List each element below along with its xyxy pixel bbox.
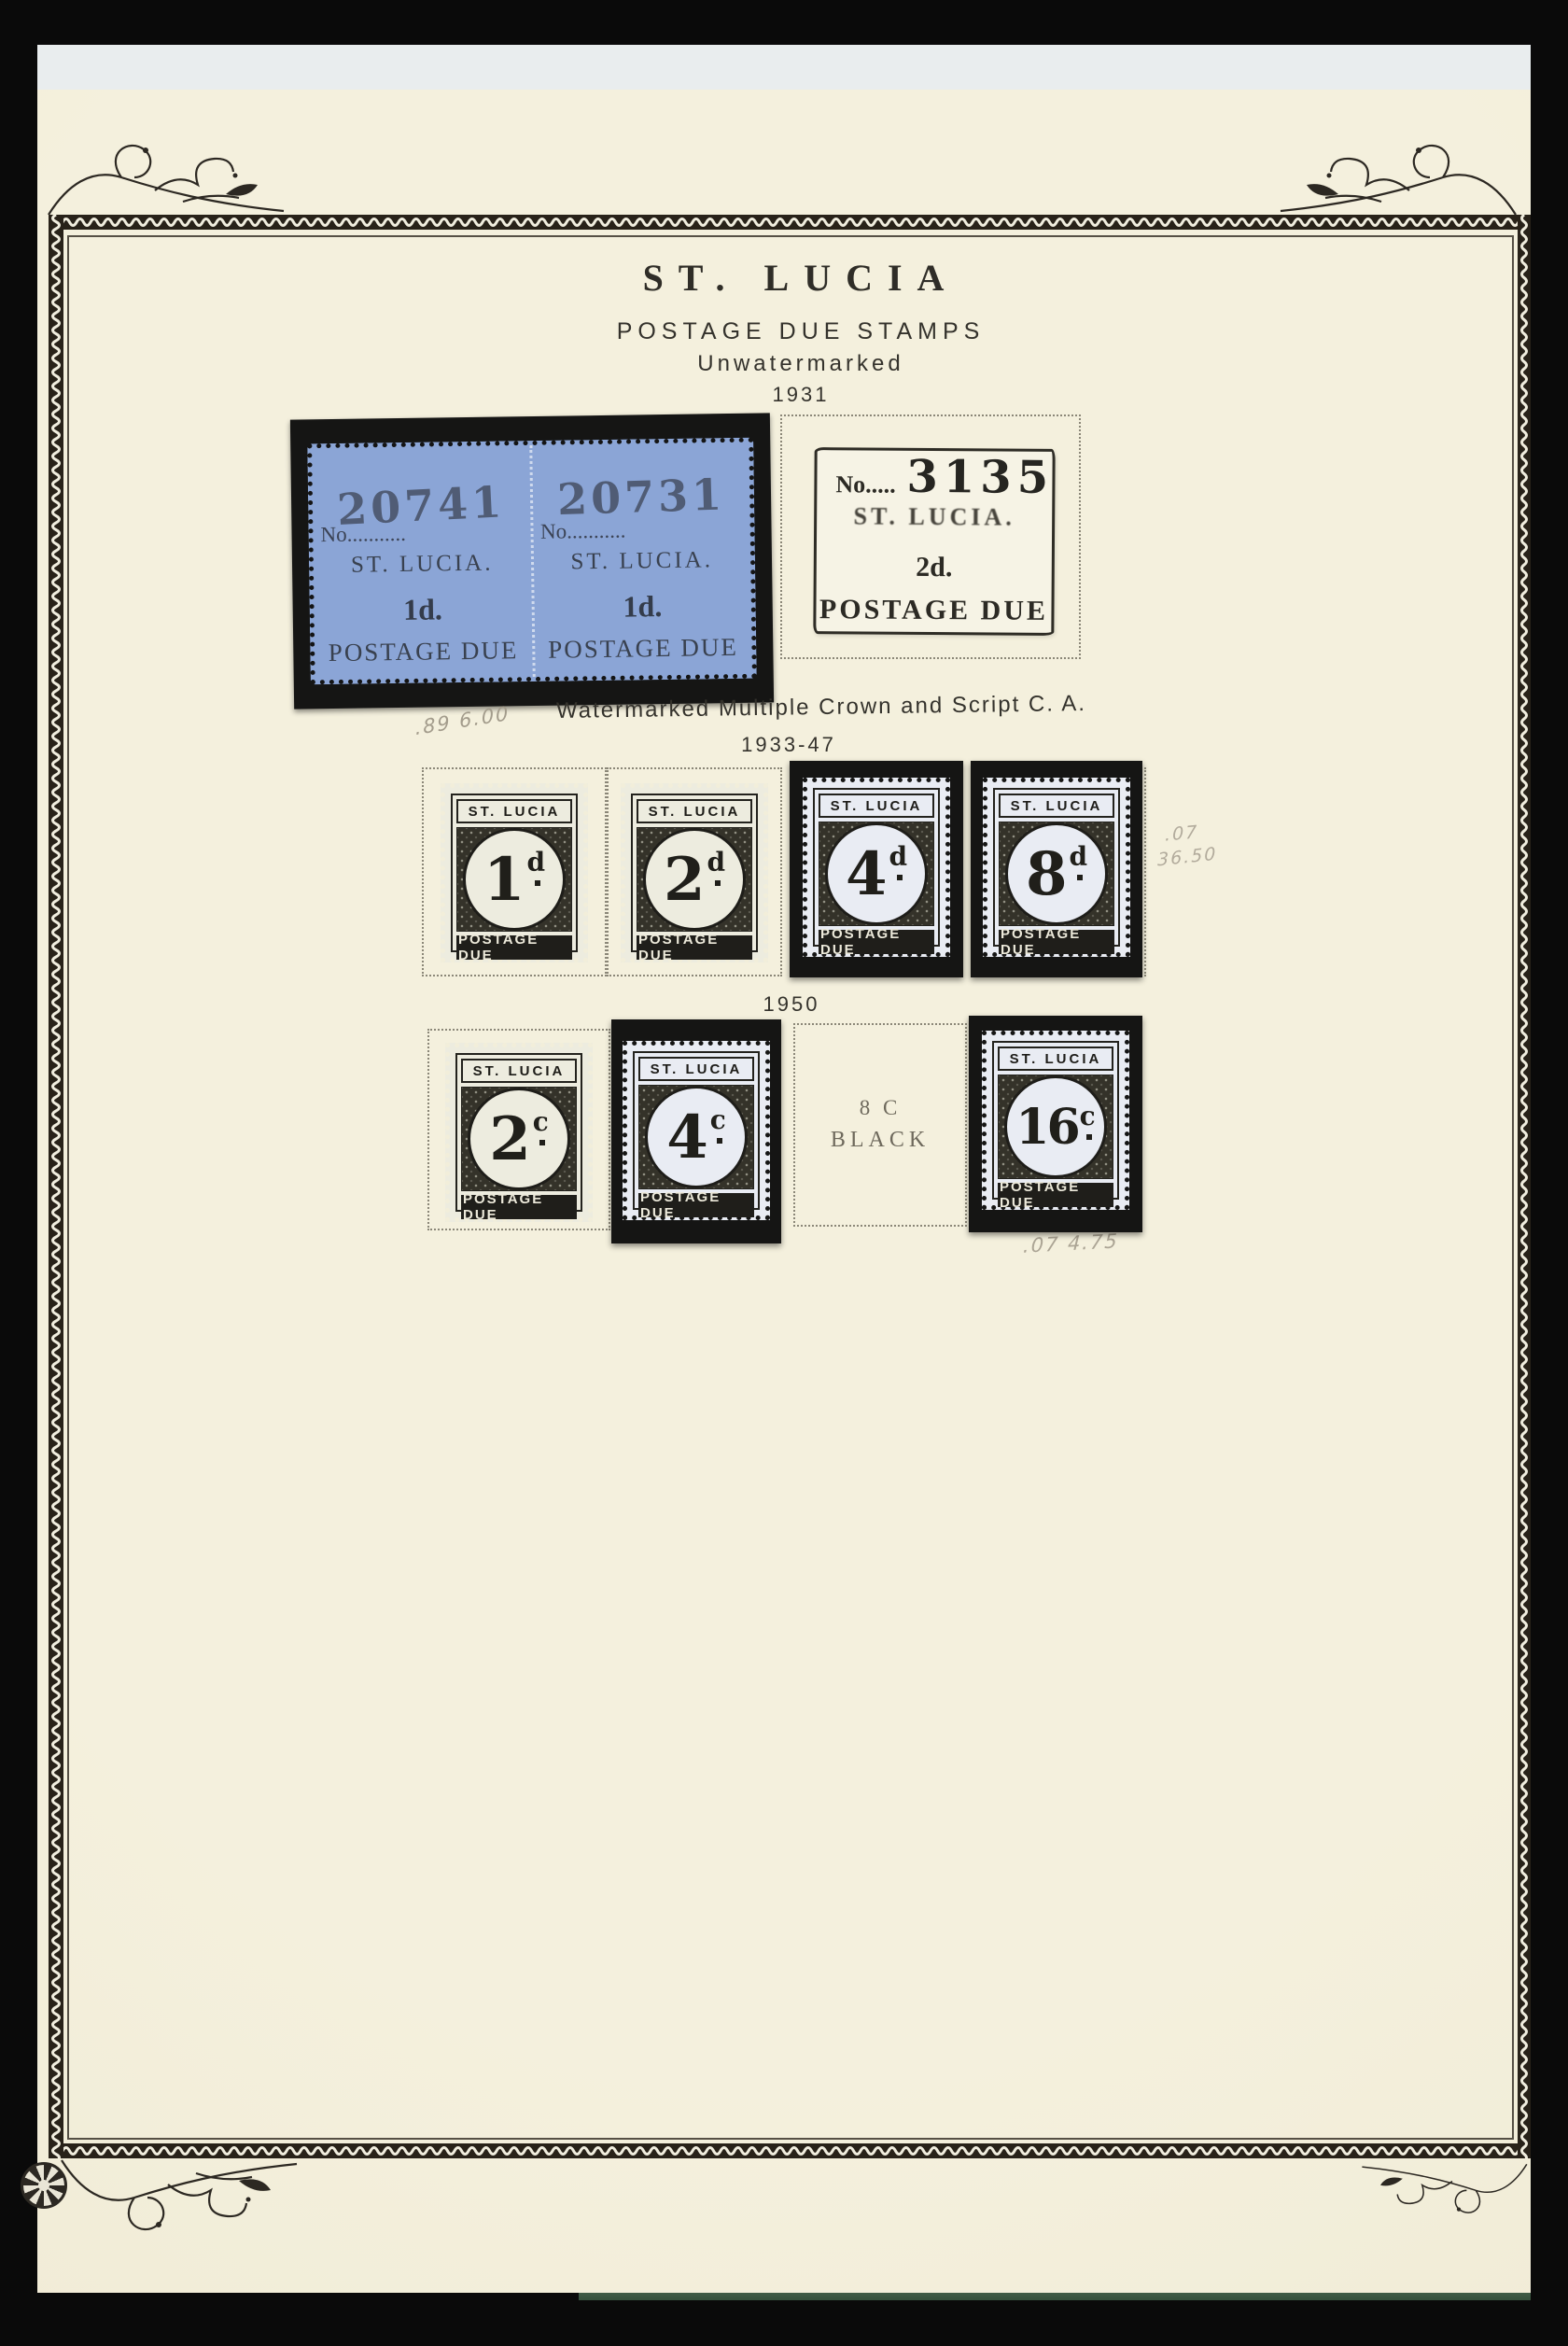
- stamp-8d: ST. LUCIA 8d POSTAGE DUE: [983, 778, 1130, 957]
- black-mount-16c: ST. LUCIA 16c POSTAGE DUE: [969, 1016, 1142, 1232]
- stamp-frame: ST. LUCIA 2d POSTAGE DUE: [631, 794, 758, 952]
- stamp-numeral: 2: [664, 845, 706, 915]
- stamp-4c: ST. LUCIA 4c POSTAGE DUE: [623, 1041, 770, 1220]
- stamp-frame: ST. LUCIA 4d POSTAGE DUE: [813, 788, 940, 947]
- no-dotted-line: No...........: [320, 522, 406, 547]
- stamp-footer-banner: POSTAGE DUE: [638, 1193, 754, 1217]
- stamp-ornament-panel: 2d: [637, 827, 752, 932]
- stamp-1d: ST. LUCIA 1d POSTAGE DUE: [441, 783, 588, 962]
- stamp-country-label: ST. LUCIA: [1011, 798, 1103, 814]
- stamp-4d: ST. LUCIA 4d POSTAGE DUE: [803, 778, 950, 957]
- stamp-value-label: 1d.: [534, 588, 751, 625]
- blue-stamp-right: 20731 No........... ST. LUCIA. 1d. POSTA…: [529, 443, 752, 677]
- stamp-footer-label: POSTAGE DUE: [463, 1191, 575, 1223]
- stamp-value-circle: 1d: [463, 828, 566, 931]
- stamp-ornament-panel: 4d: [819, 822, 934, 926]
- stamp-footer-label: POSTAGE DUE: [638, 932, 750, 963]
- stamp-numeral: 2: [489, 1104, 531, 1174]
- album-photo: ST. LUCIA POSTAGE DUE STAMPS Unwatermark…: [0, 0, 1568, 2346]
- stamp-footer-label: POSTAGE DUE: [458, 932, 570, 963]
- stamp-country-banner: ST. LUCIA: [456, 799, 572, 823]
- printed-stamp-box-2c: ST. LUCIA 2c POSTAGE DUE: [427, 1029, 610, 1230]
- missing-stamp-color: BLACK: [795, 1128, 965, 1153]
- corner-flourish-top-left: [43, 136, 323, 217]
- stamp-ornament-panel: 1d: [456, 827, 572, 932]
- stamp-country-banner: ST. LUCIA: [998, 1047, 1113, 1071]
- stamp-footer-label: POSTAGE DUE: [816, 594, 1051, 627]
- stamp-footer-banner: POSTAGE DUE: [456, 935, 572, 960]
- stamp-frame: ST. LUCIA 1d POSTAGE DUE: [451, 794, 578, 952]
- blue-stamp-pair: 20741 No........... ST. LUCIA. 1d. POSTA…: [307, 438, 757, 685]
- stamp-ornament-panel: 2c: [461, 1087, 577, 1191]
- corner-flourish-bottom-left: [56, 2158, 336, 2239]
- stamp-footer-label: POSTAGE DUE: [1001, 926, 1113, 958]
- border-band-right: [1518, 215, 1531, 2158]
- stamp-ornament-panel: 16c: [998, 1075, 1113, 1179]
- border-band-top: [49, 215, 1521, 230]
- stamp-footer-label: POSTAGE DUE: [640, 1189, 752, 1221]
- stamp-value-label: 1d.: [314, 591, 531, 628]
- stamp-unit: d: [707, 847, 725, 878]
- stamp-value-circle: 4d: [825, 822, 928, 925]
- printed-box-edge: [1144, 767, 1146, 976]
- stamp-frame: ST. LUCIA 4c POSTAGE DUE: [633, 1051, 760, 1210]
- stamp-frame: ST. LUCIA 16c POSTAGE DUE: [992, 1041, 1119, 1200]
- corner-flourish-top-right: [1241, 136, 1521, 217]
- stamp-footer-banner: POSTAGE DUE: [637, 935, 752, 960]
- stamp-footer-label: POSTAGE DUE: [535, 633, 752, 665]
- stamp-numeral: 4: [846, 839, 888, 909]
- stamp-numeral: 16: [1015, 1099, 1077, 1156]
- black-mount-8d: ST. LUCIA 8d POSTAGE DUE: [971, 761, 1142, 977]
- stamp-country-label: ST. LUCIA.: [314, 550, 531, 579]
- stamp-footer-label: POSTAGE DUE: [315, 636, 532, 667]
- stamp-value-circle: 4c: [645, 1086, 748, 1188]
- stamp-country-label: ST. LUCIA: [651, 1061, 743, 1077]
- stamp-unit: d: [526, 847, 545, 878]
- year-1931-label: 1931: [773, 383, 830, 407]
- stamp-country-banner: ST. LUCIA: [461, 1059, 577, 1083]
- black-mount-blue-pair: 20741 No........... ST. LUCIA. 1d. POSTA…: [290, 413, 774, 709]
- stamp-unit: c: [1080, 1101, 1096, 1131]
- stamp-country-banner: ST. LUCIA: [637, 799, 752, 823]
- stamp-footer-label: POSTAGE DUE: [1000, 1179, 1112, 1211]
- stamp-unit: d: [1069, 841, 1087, 872]
- year-1950-label: 1950: [763, 992, 820, 1017]
- border-band-bottom: [49, 2143, 1521, 2158]
- printed-stamp-box-2d: No..... 3135 ST. LUCIA. 2d. POSTAGE DUE: [780, 414, 1081, 659]
- stamp-footer-banner: POSTAGE DUE: [819, 930, 934, 954]
- stamp-16c: ST. LUCIA 16c POSTAGE DUE: [982, 1031, 1129, 1210]
- stamp-footer-banner: POSTAGE DUE: [998, 1183, 1113, 1207]
- watermark-state-label: Unwatermarked: [697, 351, 903, 377]
- corner-rosette: [21, 2162, 67, 2209]
- corner-flourish-bottom-right: [1335, 2158, 1531, 2224]
- stamp-country-label: ST. LUCIA: [649, 804, 741, 820]
- stamp-country-banner: ST. LUCIA: [999, 794, 1114, 818]
- stamp-unit: c: [533, 1106, 549, 1137]
- section-title: POSTAGE DUE STAMPS: [617, 318, 986, 345]
- missing-stamp-denomination: 8 C: [795, 1096, 965, 1120]
- printed-stamp-box-2d-def: ST. LUCIA 2d POSTAGE DUE: [607, 767, 782, 976]
- serial-number: 3135: [906, 451, 1054, 504]
- blue-stamp-left: 20741 No........... ST. LUCIA. 1d. POSTA…: [312, 445, 532, 680]
- stamp-2d-def: ST. LUCIA 2d POSTAGE DUE: [621, 783, 768, 962]
- black-mount-4d: ST. LUCIA 4d POSTAGE DUE: [790, 761, 963, 977]
- serial-number: 20731: [556, 470, 726, 526]
- stamp-country-banner: ST. LUCIA: [819, 794, 934, 818]
- stamp-frame: ST. LUCIA 8d POSTAGE DUE: [993, 788, 1120, 947]
- stamp-ornament-panel: 4c: [638, 1085, 754, 1189]
- stamp-numeral: 4: [666, 1103, 708, 1173]
- stamp-country-label: ST. LUCIA: [1010, 1051, 1102, 1067]
- stamp-country-label: ST. LUCIA: [831, 798, 923, 814]
- stamp-frame: ST. LUCIA 2c POSTAGE DUE: [455, 1053, 582, 1212]
- stamp-value-circle: 16c: [1004, 1075, 1107, 1178]
- no-dotted-line: No.....: [835, 471, 895, 499]
- printed-stamp-box-8c-empty: 8 C BLACK: [793, 1023, 967, 1227]
- stamp-unit: d: [889, 841, 907, 872]
- printed-stamp-box-1d: ST. LUCIA 1d POSTAGE DUE: [422, 767, 607, 976]
- stamp-ornament-panel: 8d: [999, 822, 1114, 926]
- stamp-value-label: 2d.: [817, 551, 1052, 584]
- stamp-value-circle: 2c: [468, 1088, 570, 1190]
- stamp-country-label: ST. LUCIA: [473, 1063, 566, 1079]
- stamp-value-circle: 8d: [1005, 822, 1108, 925]
- stamp-country-label: ST. LUCIA: [469, 804, 561, 820]
- years-1933-47-label: 1933-47: [741, 733, 836, 757]
- page-title: ST. LUCIA: [643, 256, 959, 300]
- stamp-country-banner: ST. LUCIA: [638, 1057, 754, 1081]
- stamp-footer-label: POSTAGE DUE: [820, 926, 932, 958]
- black-mount-4c: ST. LUCIA 4c POSTAGE DUE: [611, 1019, 781, 1243]
- stamp-numeral: 8: [1026, 839, 1068, 909]
- stamp-value-circle: 2d: [643, 828, 746, 931]
- stamp-unit: c: [710, 1104, 726, 1135]
- stamp-country-label: ST. LUCIA.: [533, 547, 750, 576]
- stamp-footer-banner: POSTAGE DUE: [461, 1195, 577, 1219]
- stamp-2d-3135: No..... 3135 ST. LUCIA. 2d. POSTAGE DUE: [813, 447, 1055, 636]
- stamp-country-label: ST. LUCIA.: [817, 502, 1052, 532]
- no-dotted-line: No...........: [540, 519, 626, 544]
- stamp-numeral: 1: [483, 845, 525, 915]
- pencil-note: .07: [1165, 822, 1198, 845]
- stamp-footer-banner: POSTAGE DUE: [999, 930, 1114, 954]
- stamp-2c: ST. LUCIA 2c POSTAGE DUE: [445, 1043, 593, 1222]
- border-band-left: [49, 215, 63, 2158]
